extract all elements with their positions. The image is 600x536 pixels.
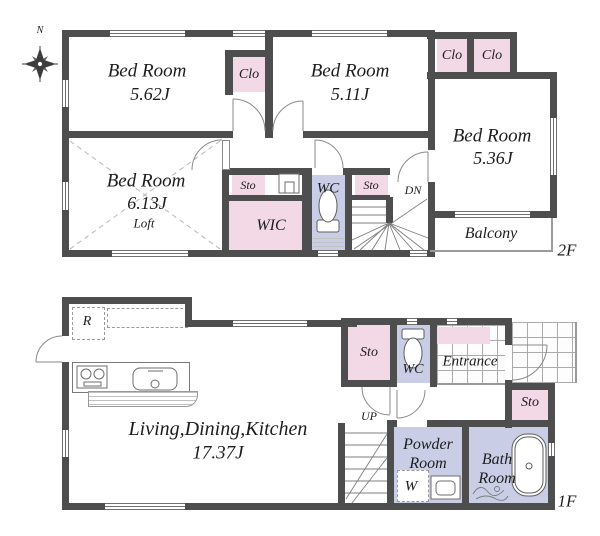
up-label: UP <box>361 410 377 422</box>
entrance-label: Entrance <box>443 354 498 369</box>
floor2-label: 2F <box>558 241 577 258</box>
bedroom1-label: Bed Room <box>108 61 187 80</box>
door-leaf <box>222 140 230 170</box>
bedroom2-size: 5.11J <box>331 85 369 103</box>
compass-north-label: N <box>37 26 44 36</box>
window <box>110 30 185 37</box>
wall <box>62 30 69 257</box>
storage1-label-2f: Sto <box>240 179 255 191</box>
bath-room-label-1: Bath <box>482 452 512 468</box>
bedroom4-label: Bed Room <box>107 171 186 190</box>
window <box>312 30 387 37</box>
wall <box>302 168 312 250</box>
wall <box>62 131 233 138</box>
overhead-cabinet-box <box>107 308 188 328</box>
wall <box>427 72 557 79</box>
wall <box>462 420 555 427</box>
bedroom2-label: Bed Room <box>311 61 390 80</box>
porch-edge-right <box>575 322 577 383</box>
window <box>550 118 557 175</box>
wall <box>341 380 397 387</box>
window <box>105 503 185 510</box>
ldk-label: Living,Dining,Kitchen <box>129 419 308 439</box>
closet2-label: Clo <box>442 49 462 63</box>
wall <box>229 195 302 201</box>
bedroom1-size: 5.62J <box>130 85 170 103</box>
wall <box>222 168 312 175</box>
balcony-edge <box>551 218 553 252</box>
wc-mat-2f <box>313 238 344 250</box>
wall <box>338 423 345 510</box>
storage1-label-1f: Sto <box>360 346 378 360</box>
wall <box>428 182 435 257</box>
storage2-label-2f: Sto <box>363 179 378 191</box>
wall <box>62 297 192 304</box>
bedroom4-size: 6.13J <box>127 194 167 212</box>
window <box>455 211 530 218</box>
wall <box>505 318 512 345</box>
vent-window <box>318 250 338 257</box>
stair-post <box>386 197 393 223</box>
wall <box>352 168 390 175</box>
loft-label: Loft <box>134 216 155 229</box>
bath-room-label-2: Room <box>478 471 515 487</box>
wall <box>341 318 348 387</box>
wall <box>222 172 229 250</box>
wall <box>265 30 273 138</box>
wall <box>430 318 437 387</box>
entrance-step-edge <box>437 383 505 385</box>
counter-bar <box>88 391 198 407</box>
balcony-label: Balcony <box>465 226 517 242</box>
dn-label: DN <box>405 184 422 196</box>
ldk-size: 17.37J <box>192 443 243 462</box>
vent-window <box>407 318 417 325</box>
window <box>233 30 265 37</box>
window <box>62 430 69 457</box>
wall <box>345 168 352 250</box>
refrigerator-label: R <box>83 315 92 329</box>
vent-window <box>548 443 555 456</box>
up-stairs <box>345 433 387 503</box>
floor-plan: N Bed Room 5.62J Clo Bed Room 5.11J Clo … <box>0 0 600 536</box>
wall <box>390 318 397 387</box>
window <box>112 250 188 257</box>
wic-label: WIC <box>256 218 285 234</box>
wall <box>427 420 467 427</box>
wall <box>387 420 394 510</box>
kitchen-counter <box>72 362 190 393</box>
vent-window <box>410 250 427 257</box>
entrance-step <box>437 327 490 344</box>
window <box>62 80 69 107</box>
compass-rose-icon <box>22 46 58 82</box>
bedroom3-label: Bed Room <box>453 126 532 145</box>
wall <box>345 318 512 325</box>
wall <box>303 131 435 138</box>
powder-room-label-2: Room <box>409 456 446 472</box>
wall <box>225 50 273 57</box>
cabinet-icon <box>279 174 299 193</box>
washer-label: W <box>405 479 418 494</box>
vent-window <box>447 318 457 325</box>
wc-label-1f: WC <box>403 363 424 377</box>
wall <box>428 32 435 150</box>
wall <box>352 195 390 200</box>
window <box>233 320 307 327</box>
floor1-label: 1F <box>558 492 577 509</box>
wall <box>462 427 469 510</box>
wall <box>467 32 474 79</box>
storage2-label-1f: Sto <box>521 396 539 410</box>
powder-room-label-1: Powder <box>403 437 453 453</box>
window <box>62 182 69 210</box>
closet1-label: Clo <box>239 68 259 82</box>
wc-label-2f: WC <box>317 181 340 196</box>
wall <box>430 380 437 387</box>
porch-tiles <box>512 322 577 383</box>
bedroom3-size: 5.36J <box>473 149 513 167</box>
closet3-label: Clo <box>482 49 502 63</box>
balcony-edge <box>430 250 553 252</box>
